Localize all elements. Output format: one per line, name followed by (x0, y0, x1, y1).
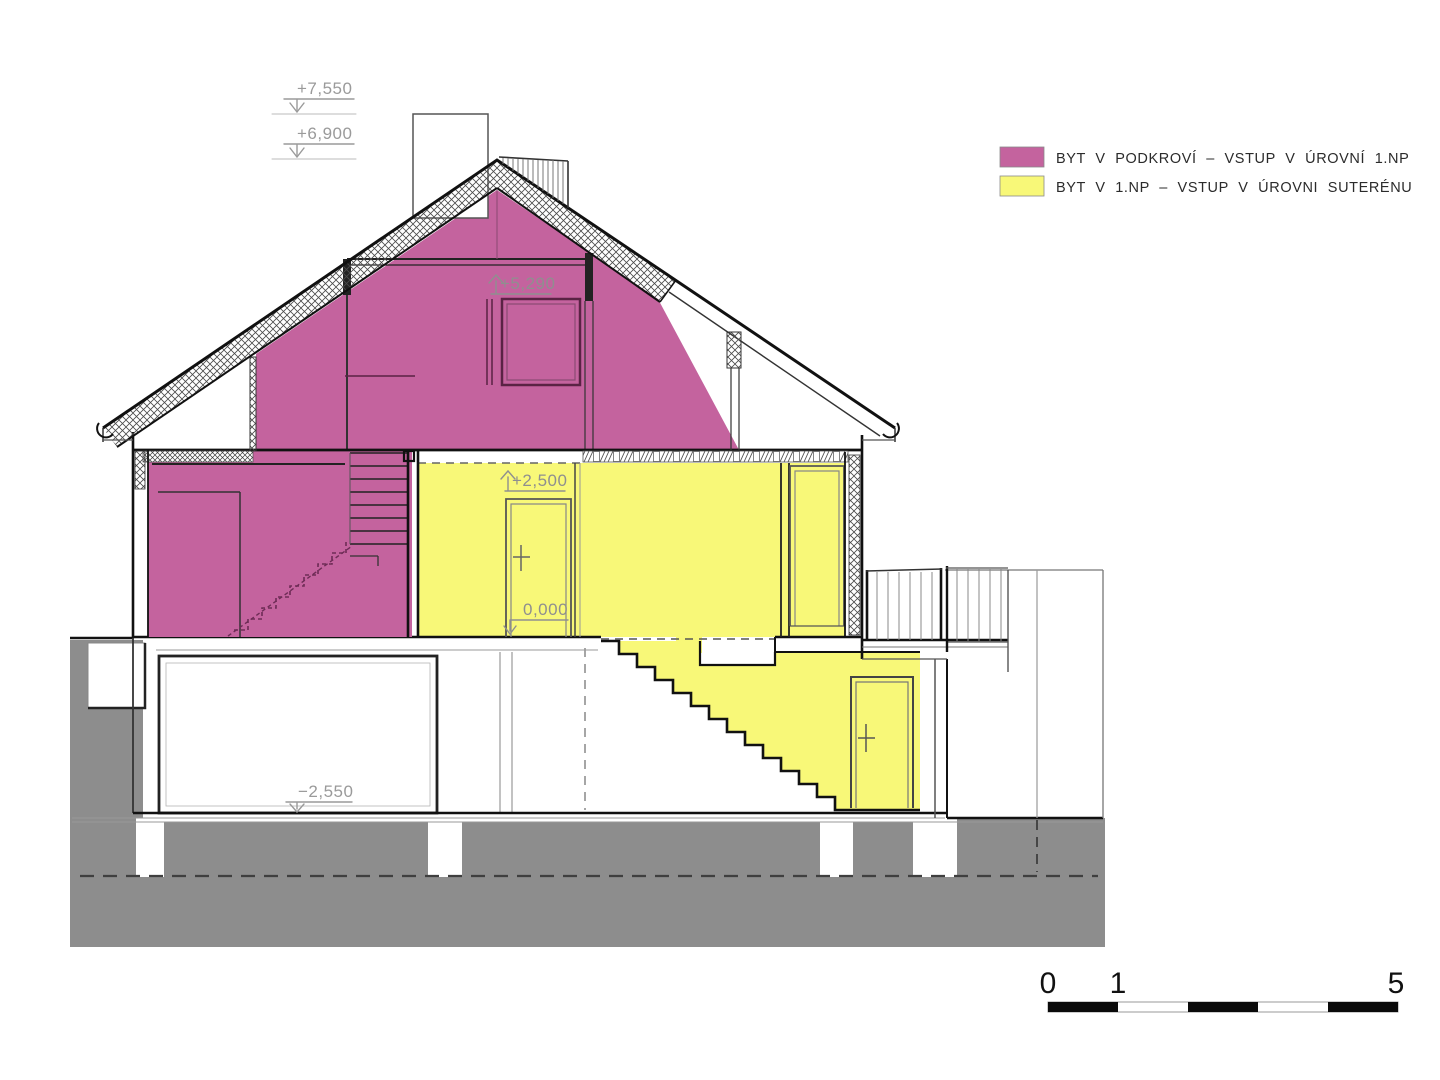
legend-swatch-first-floor (1000, 176, 1044, 196)
wall-insulation (135, 451, 145, 489)
foundation-pier (820, 818, 853, 877)
scale-bar-segment (1188, 1002, 1258, 1012)
scale-label-1: 1 (1110, 967, 1127, 1000)
stair-landing-step (700, 641, 775, 665)
scale-bar: 0 1 5 (1040, 967, 1405, 1012)
light-well (88, 643, 145, 708)
scale-bar-segment (1328, 1002, 1398, 1012)
ceiling-insulation-hatch (583, 451, 848, 462)
pony-wall-insulation (727, 332, 741, 368)
elevation-marker-chimney-top: +7,550 (272, 79, 356, 114)
scale-label-0: 0 (1040, 967, 1057, 1000)
foundation-pier (428, 818, 462, 877)
elevation-value: +5,290 (500, 274, 555, 293)
elevation-value: −2,550 (298, 782, 353, 801)
purlin-section (585, 253, 593, 301)
elevation-value: 0,000 (523, 600, 568, 619)
terrace-outline (945, 570, 1103, 818)
elevation-value: +2,500 (512, 471, 567, 490)
scale-bar-segment (1048, 1002, 1118, 1012)
elevation-marker-ridge: +6,900 (272, 124, 356, 159)
house-section-drawing: +7,550 +6,900 +5,290 +2,500 0,000 −2 (0, 0, 1440, 1080)
legend-label-attic: BYT V PODKROVÍ – VSTUP V ÚROVNÍ 1.NP (1056, 150, 1409, 167)
section-drawing-canvas: +7,550 +6,900 +5,290 +2,500 0,000 −2 (0, 0, 1440, 1080)
elevation-value: +7,550 (297, 79, 352, 98)
legend: BYT V PODKROVÍ – VSTUP V ÚROVNÍ 1.NP BYT… (1000, 147, 1412, 196)
wall-insulation (849, 455, 860, 635)
scale-label-5: 5 (1388, 967, 1405, 1000)
legend-label-first-floor: BYT V 1.NP – VSTUP V ÚROVNI SUTERÉNU (1056, 179, 1412, 196)
legend-swatch-attic (1000, 147, 1044, 167)
basement-wall-line (500, 652, 512, 812)
foundation-pier (136, 818, 164, 877)
foundation-pier (913, 818, 957, 877)
floor-insulation-hatch (143, 451, 253, 462)
terrain-right-bank (947, 818, 1105, 947)
elevation-value: +6,900 (297, 124, 352, 143)
knee-wall-insulation (250, 357, 256, 451)
